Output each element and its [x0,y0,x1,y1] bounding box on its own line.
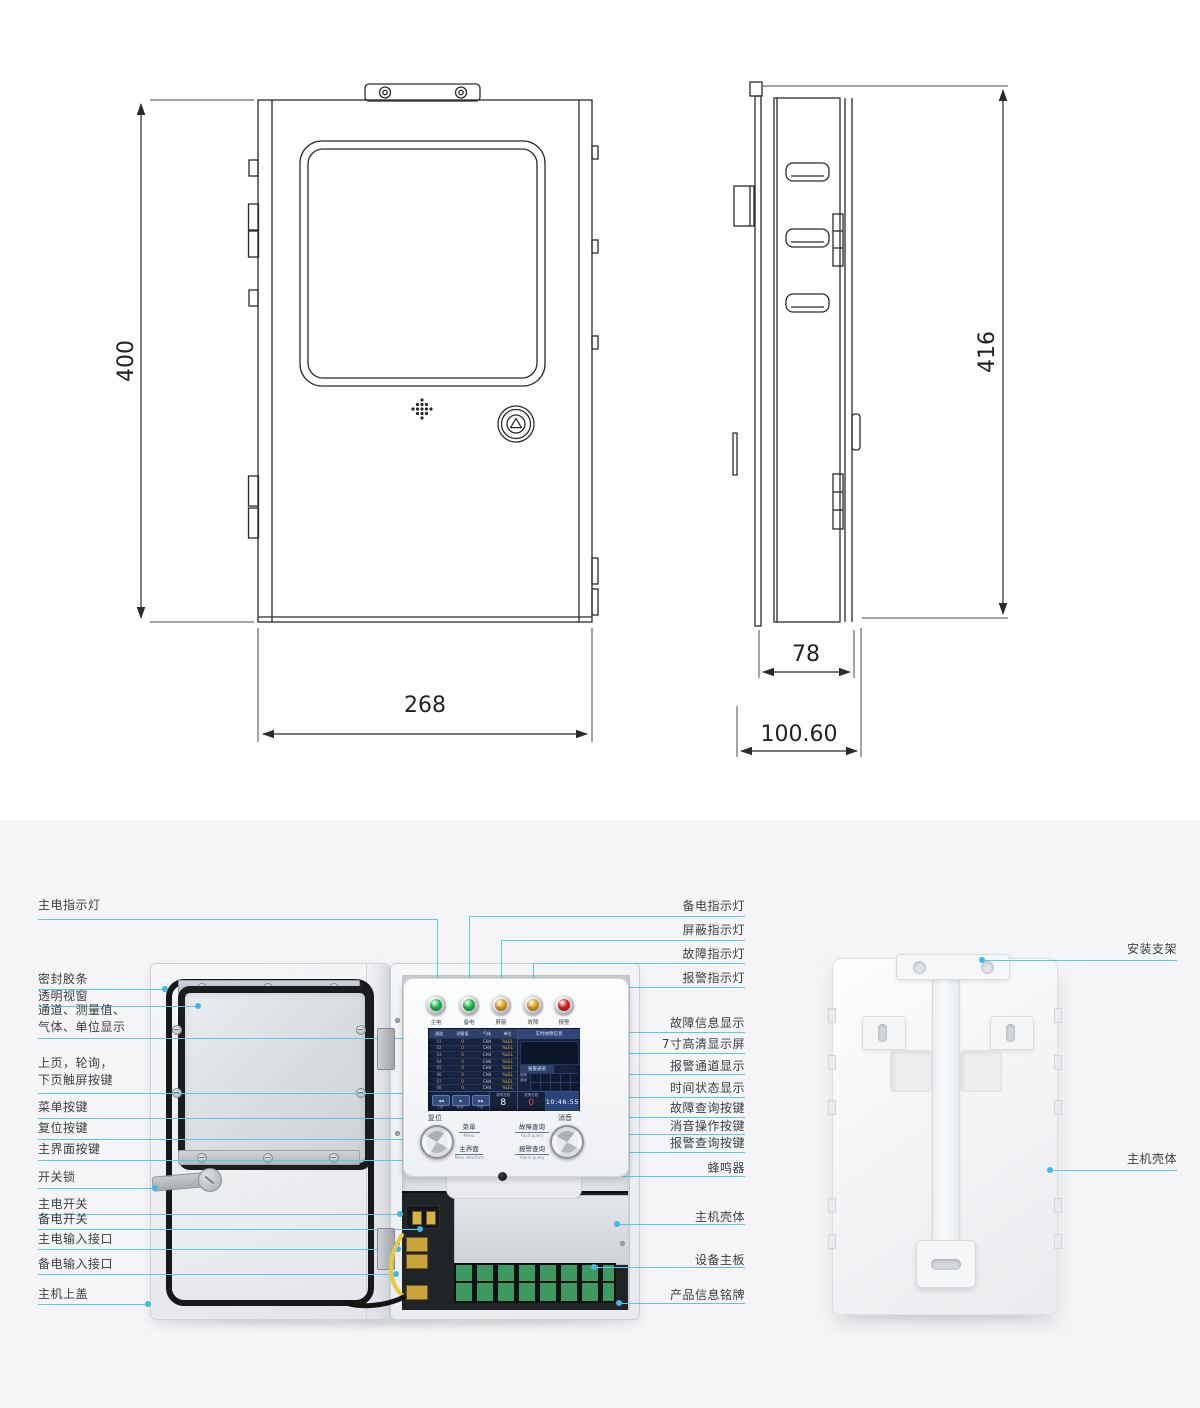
spec-sheet: 400 268 [0,0,1200,1408]
page-down-label: 下页 [471,1105,489,1110]
bracket-wing-left [862,1016,906,1050]
callout-shield-indicator: 屏蔽指示灯 [682,922,745,939]
alarm-query-touch-key: 报警查询 Alarm query [502,1136,562,1160]
screen-table-row: 050CH4%LEL [429,1065,517,1072]
bracket-spine [932,966,960,1250]
screw-icon [395,1131,400,1136]
bracket-hook [916,1240,976,1288]
back-recess [960,1050,1002,1092]
fault-info-area [520,1041,579,1065]
leader-dot [417,1226,423,1232]
callout-alarm-indicator: 报警指示灯 [682,970,745,987]
led-label: 备电 [457,1018,481,1026]
led-label: 屏蔽 [489,1018,513,1026]
screw-icon [197,1153,207,1163]
wiring-connector [406,1285,428,1300]
mounting-bracket-plate [896,954,1010,980]
clock-display: 10:46:55 [546,1092,579,1111]
callout-nameplate: 产品信息铭牌 [670,1287,745,1304]
main-interface-touch-key: 主界面 Main interface [439,1136,499,1160]
screw-icon [172,1025,182,1035]
alarm-legend: 报警 通道 [520,1073,530,1082]
screen-table-row: 030CH4%LEL [429,1051,517,1058]
callout-top-cover: 主机上盖 [38,1286,88,1303]
leader-line [38,1139,420,1140]
leader-line [617,1224,745,1225]
fault-led [523,995,543,1015]
side-total-depth-dimension: 100.60 [761,722,838,747]
screen-table-row: 020CH4%LEL [429,1045,517,1052]
leader-dot [395,1246,401,1252]
callout-alarm-query-key: 报警查询按键 [670,1135,745,1152]
screw-icon [329,1153,339,1163]
slot [931,1259,961,1270]
callout-mute-operation-key: 消音操作按键 [670,1118,745,1135]
leader-line [619,1303,745,1304]
poll-icon: ▶ [460,1099,463,1103]
callout-fault-indicator: 故障指示灯 [682,946,745,963]
side-nub [828,1234,836,1249]
col-value: 测量值 [449,1029,476,1038]
backup-power-led [459,995,479,1015]
col-channel: 通道 [429,1029,449,1038]
leader-line [594,1267,745,1268]
callout-sealing-strip: 密封胶条 [38,971,88,988]
leader-line [1050,1170,1177,1171]
screen-fault-panel: 实时故障信息 报警通道 报警 通道 [517,1029,580,1091]
leader-dot [393,1271,399,1277]
door-open-view [150,963,390,1320]
backup-power-input-connector [406,1254,428,1269]
leader-line [38,1188,155,1189]
leader-dot [195,1003,201,1009]
page-up-icon: ◀◀ [438,1099,443,1103]
side-nub [828,1055,836,1070]
mounting-hole [913,961,926,974]
leader-line [469,916,745,917]
alarm-total: 报警总数 0 [518,1092,546,1111]
main-power-switch [412,1211,422,1225]
side-nub [1054,1055,1062,1070]
screw-icon [620,1241,625,1246]
callout-touch-pager-keys: 上页，轮询，下页触屏按键 [38,1055,113,1089]
callout-switch-lock: 开关锁 [38,1169,76,1186]
callout-alarm-channel-display: 报警通道显示 [670,1058,745,1075]
screen-table-row: 040CH4%LEL [429,1058,517,1065]
leader-dot [979,957,985,963]
page-down-icon: ▶▶ [478,1099,483,1103]
callout-main-interface-key: 主界面按键 [38,1141,101,1158]
led-label: 报警 [552,1018,576,1026]
side-nub [828,1198,836,1213]
bracket-wing-right [990,1016,1034,1050]
power-switches [406,1205,440,1229]
front-height-dimension: 400 [114,340,139,382]
side-depth-dimension: 78 [792,642,820,667]
page-up-label: 上页 [431,1105,449,1110]
callout-buzzer: 蜂鸣器 [707,1160,745,1177]
front-width-dimension: 268 [404,693,446,718]
side-nub [1054,1008,1062,1023]
leader-line [38,919,437,920]
callout-backup-power-indicator: 备电指示灯 [682,898,745,915]
fault-panel-title: 实时故障信息 [518,1029,580,1039]
leader-line [38,1214,400,1215]
screw-icon [263,1153,273,1163]
leader-line [38,1093,442,1094]
screen-table-row: 060CH4%LEL [429,1071,517,1078]
slot [878,1024,887,1042]
fault-total: 故障总数 8 [490,1092,518,1111]
screen-status-bar: ◀◀ ▶ ▶▶ 上页 轮询 下页 故障总数 8 报警总数 0 10:46:55 [429,1091,579,1111]
door-latch-lock [198,1168,222,1192]
leader-line [38,1118,458,1119]
fault-query-touch-key: 故障查询 Fault query [502,1114,562,1138]
callout-housing-back: 主机壳体 [1127,1151,1177,1168]
display-screen: 通道 测量值 气体 单位 010CH4%LEL020CH4%LEL030CH4%… [428,1028,580,1111]
side-height-dimension: 416 [975,331,1000,373]
led-label: 主电 [424,1018,448,1026]
leader-line [38,1229,420,1230]
leader-line [38,1304,148,1305]
side-nub [828,1100,836,1115]
leader-dot [616,1300,622,1306]
menu-touch-key: 菜单 Menu [439,1114,499,1138]
screen-table-header: 通道 测量值 气体 单位 [429,1029,517,1038]
back-view [832,958,1058,1315]
callout-reset-key: 复位按键 [38,1120,88,1137]
leader-line [982,960,1177,961]
door-button-icon [498,406,534,442]
touch-pager: ◀◀ ▶ ▶▶ 上页 轮询 下页 [429,1092,490,1111]
screen-table-row: 070CH4%LEL [429,1078,517,1085]
side-nub [1054,1100,1062,1115]
leader-line [38,1249,400,1250]
buzzer [498,1172,507,1181]
leader-line [38,1038,430,1039]
slot [1006,1024,1015,1042]
callout-fault-query-key: 故障查询按键 [670,1100,745,1117]
leader-line [501,940,745,941]
leader-line [38,1160,455,1161]
side-nub [828,1008,836,1023]
col-unit: 单位 [498,1029,517,1038]
callout-time-status-display: 时间状态显示 [670,1080,745,1097]
leader-dot [162,986,168,992]
callout-hd-screen: 7寸高清显示屏 [662,1036,745,1053]
alarm-channel-grid [530,1073,578,1090]
shield-led [491,995,511,1015]
side-dimensions [737,86,1008,757]
callout-channel-display: 通道、测量值、气体、单位显示 [38,1002,126,1036]
led-label: 故障 [521,1018,545,1026]
side-nub [1054,1198,1062,1213]
callout-fault-info-display: 故障信息显示 [670,1015,745,1032]
alarm-channel-tab: 报警通道 [520,1065,554,1073]
callout-menu-key: 菜单按键 [38,1099,88,1116]
main-power-input-connector [406,1237,428,1252]
leader-line [533,963,745,964]
leader-dot [152,1185,158,1191]
hinge [377,1228,395,1270]
leader-dot [397,1211,403,1217]
dimension-drawings: 400 268 [0,0,1200,800]
back-recess [890,1050,932,1092]
callout-main-power-indicator: 主电指示灯 [38,897,101,914]
transparent-window [178,986,372,1170]
side-view-drawing [733,82,860,626]
screw-icon [356,1025,366,1035]
mounting-hole [981,961,994,974]
leader-line [38,1274,398,1275]
callout-backup-power-switch: 备电开关 [38,1211,88,1228]
leader-dot [591,1264,597,1270]
col-gas: 气体 [476,1029,498,1038]
screen-table-row: 010CH4%LEL [429,1038,517,1045]
poll-label: 轮询 [451,1105,469,1110]
alarm-led [554,995,574,1015]
speaker-grille-icon [411,398,432,419]
callout-backup-power-input: 备电输入接口 [38,1256,113,1273]
screen-table-rows: 010CH4%LEL020CH4%LEL030CH4%LEL040CH4%LEL… [429,1038,517,1091]
callout-mounting-bracket: 安装支架 [1127,941,1177,958]
hinge [377,1028,395,1070]
side-nub [1054,1234,1062,1249]
main-power-led [426,995,446,1015]
leader-dot [614,1221,620,1227]
front-view-drawing [249,84,599,622]
leader-dot [145,1301,151,1307]
lower-bay [402,1191,628,1310]
window-clamp-bottom [178,1150,360,1165]
motherboard-cover [454,1195,628,1265]
front-window [300,141,545,386]
callout-main-power-input: 主电输入接口 [38,1231,113,1248]
screen-table-row: 080CH4%LEL [429,1084,517,1091]
leader-dot [1047,1167,1053,1173]
screw-icon [395,1018,400,1023]
backup-power-switch [426,1211,436,1225]
